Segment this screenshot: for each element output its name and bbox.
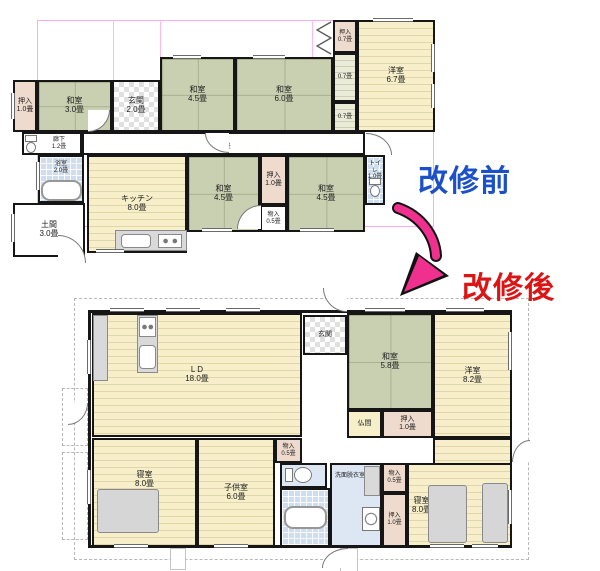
room-label: 玄関 2.0畳 — [126, 97, 145, 115]
grid-line — [160, 20, 161, 57]
window — [36, 162, 40, 190]
window — [508, 332, 512, 370]
window — [226, 308, 260, 312]
room-label: 押入 0.7畳 — [338, 30, 352, 43]
window — [11, 93, 15, 119]
room-closet-0-7: 押入 0.7畳 — [333, 20, 357, 53]
room-storage-0-5-right: 物入 0.5畳 — [382, 463, 407, 493]
bed-icon — [482, 483, 508, 543]
room-western-8-2: 洋室 8.2畳 — [433, 313, 512, 438]
window — [87, 470, 91, 504]
sink-icon — [139, 345, 156, 369]
window — [253, 55, 285, 59]
window — [110, 308, 144, 312]
room-label: L D 18.0畳 — [185, 366, 209, 384]
bed-icon — [428, 485, 467, 543]
window — [214, 544, 248, 548]
window — [431, 84, 435, 108]
room-label: 0.7畳 — [338, 74, 352, 81]
room-label: 和室 4.5畳 — [214, 185, 233, 203]
room-tatami-6-0: 和室 6.0畳 — [235, 57, 333, 132]
window — [365, 308, 405, 312]
room-label: 洋室 8.2畳 — [463, 367, 482, 385]
window — [373, 18, 413, 22]
window — [114, 544, 148, 548]
room-label: 押入 1.0畳 — [17, 98, 34, 114]
room-label: 物入 0.5畳 — [266, 212, 280, 225]
room-closet-1-0-b: 押入 1.0畳 — [260, 155, 287, 205]
toilet-icon — [285, 468, 293, 482]
room-label: 和室 4.5畳 — [316, 185, 335, 203]
kitchen-counter — [93, 315, 108, 381]
before-title: 改修前 — [418, 156, 511, 200]
room-engawa-strip-b: 0.7畳 — [333, 102, 357, 132]
room-label: 和室 5.8畳 — [380, 353, 399, 371]
folding-door-icon — [316, 21, 333, 55]
room-label: 押入 1.0畳 — [265, 172, 282, 188]
toilet-icon — [294, 467, 312, 483]
window — [166, 308, 200, 312]
room-closet-1-0-after: 押入 1.0畳 — [382, 410, 433, 438]
room-kids-room: 子供室 6.0畳 — [197, 438, 275, 547]
room-engawa-strip-a: 0.7畳 — [333, 53, 357, 102]
room-entrance-before: 玄関 2.0畳 — [112, 80, 160, 132]
room-entrance-after: 玄関 — [303, 315, 347, 355]
after-title: 改修後 — [462, 263, 555, 307]
room-label: 子供室 6.0畳 — [224, 484, 248, 502]
exterior-step — [170, 548, 186, 570]
room-label: 浴室 2.0畳 — [54, 161, 68, 174]
window — [173, 55, 201, 59]
window — [431, 44, 435, 72]
room-tatami-5-8: 和室 5.8畳 — [347, 313, 433, 410]
porch-outline — [62, 452, 88, 540]
room-label: 土間 3.0畳 — [39, 221, 58, 239]
room-label: 廊下 1.2畳 — [52, 137, 66, 150]
window — [202, 228, 232, 232]
grid-line — [312, 20, 313, 57]
floorplan-diagram: 押入 1.0畳 和室 3.0畳 玄関 2.0畳 和室 4.5畳 和室 6.0畳 … — [0, 0, 600, 571]
room-storage-0-5-center: 物入 0.5畳 — [275, 438, 302, 463]
room-living-dining: L D 18.0畳 — [92, 313, 302, 437]
stove-icon — [158, 234, 182, 248]
room-closet-1-0-right: 押入 1.0畳 — [382, 493, 407, 547]
room-label: 洋室 6.7畳 — [386, 67, 405, 85]
room-label: 物入 0.5畳 — [281, 444, 295, 457]
bathtub-icon — [284, 506, 327, 529]
bathtub-icon — [41, 180, 82, 201]
room-label: 玄関 — [318, 331, 332, 339]
room-butsuma: 仏間 — [347, 410, 382, 438]
room-tatami-4-5-c: 和室 4.5畳 — [287, 155, 365, 232]
room-tatami-4-5-a: 和室 4.5畳 — [160, 57, 235, 132]
room-western-6-7: 洋室 6.7畳 — [357, 20, 435, 132]
toilet-icon — [370, 185, 380, 197]
renovation-arrow-icon — [383, 198, 455, 303]
stove-icon — [139, 317, 156, 337]
toilet-icon — [369, 178, 381, 185]
room-label: 和室 3.0畳 — [65, 97, 84, 115]
room-label: 和室 4.5畳 — [188, 86, 207, 104]
room-label: 0.7畳 — [338, 114, 352, 121]
window — [300, 228, 334, 232]
vanity-sink — [364, 466, 380, 496]
room-bedroom-right-ext — [433, 438, 512, 465]
room-label: 寝室 8.0畳 — [135, 471, 154, 489]
window — [430, 544, 464, 548]
window — [446, 308, 484, 312]
room-label: 物入 0.5畳 — [387, 471, 401, 484]
room-storage-0-5-before: 物入 0.5畳 — [260, 205, 287, 232]
window — [87, 340, 91, 374]
sink-icon — [121, 234, 151, 248]
window — [11, 214, 15, 242]
room-label: 押入 1.0畳 — [399, 416, 416, 432]
room-label: キッチン 8.0畳 — [121, 195, 153, 213]
window — [96, 249, 124, 253]
grid-line — [113, 20, 114, 80]
window — [508, 490, 512, 524]
room-label: 仏間 — [358, 420, 372, 428]
bed-icon — [97, 489, 159, 533]
toilet-icon — [26, 142, 36, 153]
room-label: 和室 6.0畳 — [274, 86, 293, 104]
toilet-icon — [25, 135, 37, 142]
window — [472, 544, 498, 548]
room-closet-1-0: 押入 1.0畳 — [13, 80, 37, 132]
room-label: 押入 1.0畳 — [387, 513, 401, 526]
room-label: 洗面脱衣室 — [335, 473, 365, 480]
washing-machine-icon — [362, 507, 380, 531]
